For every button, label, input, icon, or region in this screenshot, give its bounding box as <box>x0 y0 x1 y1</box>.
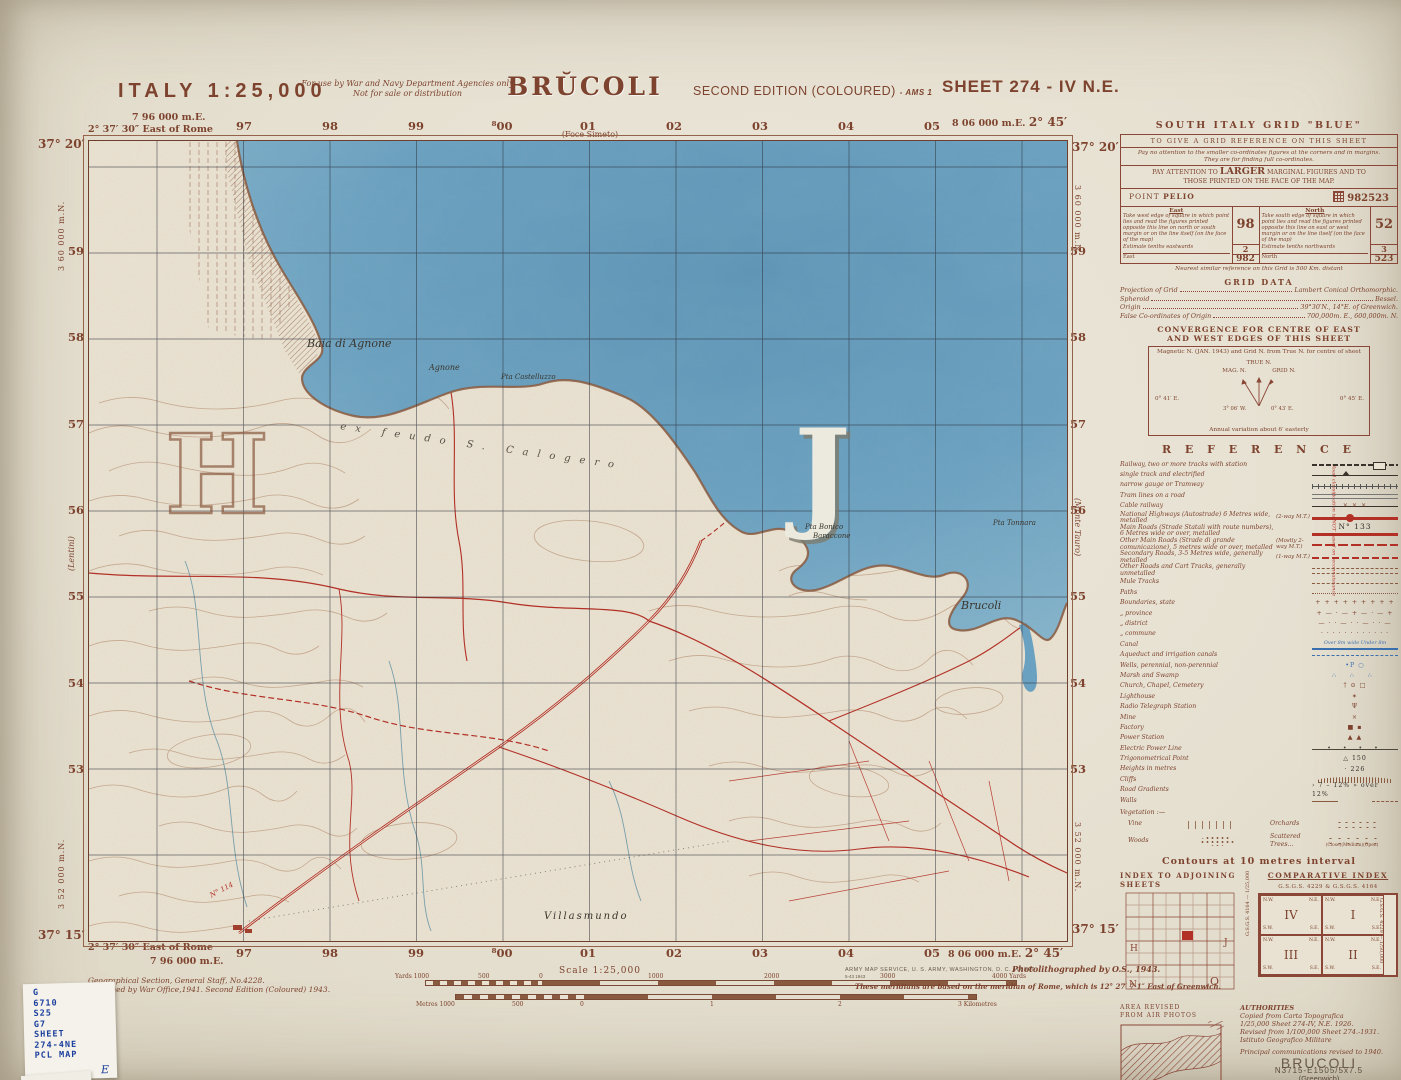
legend-note: (2-way M.T.) <box>1276 515 1312 521</box>
east-tenths-label: Estimate tenths eastwards <box>1123 245 1230 251</box>
vegetation-symbol <box>1180 836 1240 846</box>
legend-label: Wells, perennial, non-perennial <box>1120 663 1276 670</box>
legend-row: Other Roads and Cart Tracks, generally u… <box>1120 564 1398 577</box>
yards-tick: 1000 <box>648 973 663 980</box>
grid-number: 58 <box>68 330 84 344</box>
vegetation-item-label: Vine <box>1128 820 1180 829</box>
legend-symbol-text: • • • • <box>1312 744 1398 754</box>
top-right-latitude: 37° 20′ <box>1072 140 1119 154</box>
legend-label: Canal <box>1120 642 1276 649</box>
grid-number: 98 <box>313 946 347 960</box>
grid-number: 99 <box>399 119 433 133</box>
corner-sw: S.W. <box>1263 965 1273 974</box>
grid-panel-attention: PAY ATTENTION TO LARGER MARGINAL FIGURES… <box>1121 166 1397 189</box>
legend-row: Main Roads (Strade Statali with route nu… <box>1120 525 1398 538</box>
legend-row: Marsh and Swamp ∴ ∴ ∴ <box>1120 671 1398 681</box>
grid-panel-note-a: Pay no attention to the smaller co-ordin… <box>1124 150 1394 157</box>
legend-label: „ commune <box>1120 631 1276 638</box>
legend-row: Factory ■ ▪ <box>1120 723 1398 733</box>
legend-row: „ province + — · — + — · — + <box>1120 609 1398 619</box>
restriction-note: For use by War and Navy Department Agenc… <box>300 79 515 99</box>
grid-square-icon <box>1333 191 1344 202</box>
comparative-cell: IV N.W. N.E. S.W. S.E. <box>1260 895 1322 935</box>
grid-reference-box: TO GIVE A GRID REFERENCE ON THIS SHEET P… <box>1120 134 1398 265</box>
leader-dots <box>1143 308 1299 309</box>
map-label-castelluzzo: Pta Castelluzzo <box>501 373 556 381</box>
legend-symbol: × <box>1312 713 1398 723</box>
legend-row: Mine × <box>1120 713 1398 723</box>
vegetation-label: Vegetation :— <box>1120 808 1398 817</box>
legend-symbol: ▲ ▲ <box>1312 734 1398 744</box>
grid-data-value: Lambert Conical Orthomorphic. <box>1294 286 1398 295</box>
legend-row: narrow gauge or Tramway <box>1120 480 1398 490</box>
map-label-tonnara: Pta Tonnara <box>993 519 1036 527</box>
legend-symbol-text: ▲ ▲ <box>1312 734 1398 744</box>
legend-symbol <box>1312 566 1398 576</box>
vegetation-rows: Vine Orchards Woods <box>1128 820 1398 850</box>
grid-number: 97 <box>227 946 261 960</box>
legend-symbol-text: N° 133 <box>1312 518 1398 536</box>
legend-symbol-text: › 7 – 12% » over 12% <box>1312 786 1398 796</box>
corner-se: S.E. <box>1372 965 1381 974</box>
legend-note: (Mostly 2-way M.T.) <box>1276 539 1312 551</box>
grid-number: 03 <box>743 946 777 960</box>
grid-number: 55 <box>1070 589 1086 603</box>
point-name: PELIO <box>1163 192 1195 201</box>
left-northing-top: 3 60 000 m.N. <box>57 201 66 271</box>
corner-ne: N.E. <box>1309 937 1319 946</box>
east-north-columns: East Take west edge of square in which p… <box>1121 207 1397 263</box>
legend-label: Church, Chapel, Cemetery <box>1120 683 1276 690</box>
legend-symbol-text <box>1312 540 1398 550</box>
legend-label: Boundaries, state <box>1120 600 1276 607</box>
restriction-line2: Not for sale or distribution <box>300 89 515 99</box>
legend-symbol: + + + + + + + + + <box>1312 599 1398 609</box>
legend-row: Canal Over 8m wide Under 8m <box>1120 640 1398 650</box>
legend-symbol <box>1312 481 1398 491</box>
grid-number: 03 <box>743 119 777 133</box>
corner-sw: S.W. <box>1325 925 1335 934</box>
area-revised-diagram <box>1120 1021 1224 1080</box>
legend-symbol-text: •P ○ <box>1312 661 1398 671</box>
grid-number: ⁸00 <box>485 946 519 960</box>
north-value: 52 <box>1371 207 1397 244</box>
grid-number: 54 <box>68 676 84 690</box>
reference-value: 982523 <box>1347 193 1389 204</box>
corner-nw: N.W. <box>1263 897 1274 906</box>
corner-nw: N.W. <box>1325 897 1336 906</box>
map-label-villasmundo: Villasmundo <box>544 911 629 922</box>
legend-label: Tram lines on a road <box>1120 493 1276 500</box>
legend-row: Power Station ▲ ▲ <box>1120 733 1398 743</box>
grid-panel-line1: TO GIVE A GRID REFERENCE ON THIS SHEET <box>1121 135 1397 149</box>
grid-number: 05 <box>915 119 949 133</box>
grid-data-value: Bessel. <box>1375 295 1398 304</box>
legend-row: Paths <box>1120 588 1398 598</box>
outer-right-angle: 0° 45′ E. <box>1340 395 1364 404</box>
grid-data-label: False Co-ordinates of Origin <box>1120 312 1211 321</box>
authorities-line3: Revised from 1/100,000 Sheet 274.-1931. <box>1240 1028 1398 1036</box>
true-north-label: TRUE N. <box>1149 359 1369 368</box>
legend-label: „ district <box>1120 621 1276 628</box>
legend-symbol-text <box>1312 578 1398 588</box>
collation-letter-land: H <box>165 410 269 539</box>
corner-se: S.E. <box>1310 965 1319 974</box>
legend-symbol-text: · 226 <box>1312 765 1398 775</box>
reference-title: R E F E R E N C E <box>1120 446 1398 455</box>
grid-number: 99 <box>399 946 433 960</box>
photolithographed-note: Photolithographed by O.S., 1943. <box>1012 964 1160 974</box>
legend-row: „ district — · · — · · — · · — <box>1120 619 1398 629</box>
legend-row: Walls <box>1120 796 1398 806</box>
east-total-value: 982 <box>1233 254 1259 264</box>
legend-symbol-text: † ⊙ □ <box>1312 682 1398 692</box>
legend-label: Main Roads (Strade Statali with route nu… <box>1120 525 1276 538</box>
convergence-title-2: AND WEST EDGES OF THIS SHEET <box>1120 335 1398 344</box>
east-total-label: East <box>1123 253 1230 261</box>
attention-pre: PAY ATTENTION TO <box>1152 169 1218 176</box>
legend-symbol-text: + + + + + + + + + <box>1312 599 1398 609</box>
corner-sw: S.W. <box>1325 965 1335 974</box>
grid-data-row: Projection of Grid Lambert Conical Ortho… <box>1120 286 1398 295</box>
legend-symbol-text <box>1312 588 1398 598</box>
legend-symbol: + — · — + — · — + <box>1312 609 1398 619</box>
bottom-right-easting: 8 06 000 m.E. 2° 45′ <box>948 946 1063 960</box>
grid-numbers-left: 59585756555453 <box>68 244 84 776</box>
legend-label: Railway, two or more tracks with station <box>1120 462 1276 469</box>
comparative-cell: III N.W. N.E. S.W. S.E. <box>1260 935 1322 975</box>
vegetation-item-label: Scattered Trees... <box>1270 833 1322 850</box>
leader-dots <box>1180 291 1293 292</box>
sheet-title: BRŬCOLI <box>505 72 665 101</box>
grid-number: 55 <box>68 589 84 603</box>
top-right-longitude: 2° 45′ <box>1029 115 1067 129</box>
legend-label: Walls <box>1120 798 1276 805</box>
legend-row: Road Gradients › 7 – 12% » over 12% <box>1120 785 1398 795</box>
comparative-side-right: G.S.G.S. 4229 — 1/50,000 <box>1376 898 1385 963</box>
grid-number: 57 <box>1070 417 1086 431</box>
comparative-index-title: COMPARATIVE INDEX <box>1258 872 1398 881</box>
legend-label: Aqueduct and irrigation canals <box>1120 652 1276 659</box>
area-revised-caption: AREA REVISED FROM AIR PHOTOS <box>1120 1004 1232 1021</box>
grid-number: ⁸00 <box>485 119 519 133</box>
outer-left-angle: 0° 41′ E. <box>1155 395 1179 404</box>
north-labels: MAG. N. GRID N. <box>1149 367 1369 376</box>
comparative-index-header: G.S.G.S. 4229 & G.S.G.S. 4164 <box>1258 883 1398 892</box>
restriction-line1: For use by War and Navy Department Agenc… <box>300 79 515 89</box>
grid-number: 97 <box>227 119 261 133</box>
map-label-bonico: Pta Bonico <box>805 523 843 531</box>
legend-label: Factory <box>1120 725 1276 732</box>
legend-label: „ province <box>1120 611 1276 618</box>
legend-label: Cliffs <box>1120 777 1276 784</box>
legend-symbol-text <box>1312 470 1398 480</box>
legend-label: Radio Telegraph Station <box>1120 704 1276 711</box>
legend-symbol <box>1312 540 1398 550</box>
grid-number: 53 <box>1070 762 1086 776</box>
east-value: 98 <box>1233 207 1259 244</box>
legend-row: Trigonometrical Point △ 150 <box>1120 754 1398 764</box>
yards-tick: 2000 <box>764 973 779 980</box>
metres-tick: 3 Kilometres <box>958 1001 997 1008</box>
legend-symbol: † ⊙ □ <box>1312 682 1398 692</box>
legend-symbol-text: ✶ <box>1312 692 1398 702</box>
right-northing-bottom: 3 52 000 m.N. <box>1073 822 1082 892</box>
corner-ne: N.E. <box>1309 897 1319 906</box>
legend-symbol-text: ■ ▪ <box>1312 723 1398 733</box>
vegetation-item: Vine <box>1128 820 1256 830</box>
legend-label: Road Gradients <box>1120 787 1276 794</box>
adjoining-index-diagram: H J N O <box>1120 889 1240 993</box>
authorities-title: AUTHORITIES <box>1240 1004 1398 1012</box>
grid-data-value: 39°30′N., 14°E. of Greenwich. <box>1300 303 1398 312</box>
bottom-right-easting-value: 8 06 000 m.E. <box>948 949 1022 960</box>
legend-label: Heights in metres <box>1120 766 1276 773</box>
point-label: POINT <box>1129 192 1160 201</box>
catalog-card: E G6710S25G7SHEET274-4NEPCL MAP <box>23 982 117 1080</box>
grid-north-label: GRID N. <box>1272 367 1295 376</box>
legend-label: National Highways (Autostrade) 6 Metres … <box>1120 512 1276 525</box>
legend-symbol: · 226 <box>1312 765 1398 775</box>
legend-row: Radio Telegraph Station Ψ <box>1120 702 1398 712</box>
bottom-left-easting: 7 96 000 m.E. <box>150 956 224 967</box>
grid-number: 59 <box>1070 244 1086 258</box>
vegetation-item-label: Woods <box>1128 837 1180 846</box>
legend-row: Heights in metres · 226 <box>1120 765 1398 775</box>
corner-se: S.E. <box>1310 925 1319 934</box>
legend-symbol-text: Ψ <box>1312 702 1398 712</box>
legend-symbol-text: △ 150 <box>1312 754 1398 764</box>
legend-label: Lighthouse <box>1120 694 1276 701</box>
grid-panel-footer: Nearest similar reference on this Grid i… <box>1120 266 1398 273</box>
legend-row: Railway, two or more tracks with station <box>1120 460 1398 470</box>
index-section: INDEX TO ADJOINING SHEETS H J N O <box>1120 872 1398 996</box>
legend-rows: Railway, two or more tracks with station… <box>1120 460 1398 806</box>
legend-label: Mine <box>1120 715 1276 722</box>
adjoining-letter-j: J <box>1223 938 1228 948</box>
annual-variation-note: Annual variation about 6′ easterly <box>1149 427 1369 434</box>
authorities-line1: Copied from Carta Topografica <box>1240 1012 1398 1020</box>
north-total-value: 523 <box>1371 254 1397 264</box>
legend-label: Mule Tracks <box>1120 579 1276 586</box>
metres-scale-bar <box>455 994 977 1000</box>
attention-post2: THOSE PRINTED ON THE FACE OF THE MAP. <box>1183 178 1334 185</box>
army-map-service-line: ARMY MAP SERVICE, U. S. ARMY, WASHINGTON… <box>845 967 1035 973</box>
legend-symbol: ✶ <box>1312 692 1398 702</box>
grid-data-value: 700,000m. E., 600,000m. N. <box>1307 312 1398 321</box>
north-column: North Take south edge of square in which… <box>1260 207 1398 263</box>
edition-label: SECOND EDITION (COLOURED) - AMS 1 <box>693 84 932 98</box>
grid-number: 01 <box>571 946 605 960</box>
grid-numbers-right: 59585756555453 <box>1070 244 1086 776</box>
grid-numbers-bottom: 979899⁸000102030405 <box>227 946 949 960</box>
yards-tick: 500 <box>478 973 489 980</box>
grid-number: 98 <box>313 119 347 133</box>
legend-label: Marsh and Swamp <box>1120 673 1276 680</box>
leader-dots <box>1213 317 1305 318</box>
legend-row: Lighthouse ✶ <box>1120 692 1398 702</box>
comparative-side-left: G.S.G.S. 4164 — 1/25,000 <box>1244 871 1253 936</box>
legend-symbol-text: × <box>1312 713 1398 723</box>
publisher-note: Geographical Section, General Staff, No.… <box>88 976 330 994</box>
country-scale: ITALY 1:25,000 <box>118 80 327 103</box>
legend-symbol <box>1312 578 1398 588</box>
yards-tick: 4000 Yards <box>992 973 1026 980</box>
east-column: East Take west edge of square in which p… <box>1121 207 1260 263</box>
grid-number: 58 <box>1070 330 1086 344</box>
adjoining-letter-h: H <box>1130 944 1138 954</box>
legend-label: Cable railway <box>1120 503 1276 510</box>
legend-symbol-text <box>1312 650 1398 660</box>
grid-panel-note: Pay no attention to the smaller co-ordin… <box>1121 148 1397 166</box>
top-right-easting-value: 8 06 000 m.E. <box>952 118 1026 129</box>
legend-label: single track and electrified <box>1120 472 1276 479</box>
legend-symbol <box>1312 650 1398 660</box>
grid-number: 53 <box>68 762 84 776</box>
metres-tick: 2 <box>838 1001 842 1008</box>
legend-symbol <box>1312 796 1398 806</box>
yards-tick: Yards 1000 <box>395 973 429 980</box>
legend-symbol: △ 150 <box>1312 754 1398 764</box>
legend-symbol-text: — · · — · · — · · — <box>1312 619 1398 629</box>
grid-panel-title: SOUTH ITALY GRID "BLUE" <box>1120 122 1398 131</box>
corner-sw: S.W. <box>1263 925 1273 934</box>
grid-data-row: Spheroid Bessel. <box>1120 295 1398 304</box>
east-tenths-value: 2 <box>1233 244 1259 254</box>
grid-data-row: Origin 39°30′N., 14°E. of Greenwich. <box>1120 303 1398 312</box>
yards-tick: 0 <box>539 973 543 980</box>
grid-number: 05 <box>915 946 949 960</box>
legend-symbol: × × × <box>1312 501 1398 511</box>
grid-number: 59 <box>68 244 84 258</box>
grid-number: 02 <box>657 946 691 960</box>
area-revised-line1: AREA REVISED <box>1120 1004 1232 1013</box>
authorities-line4: Istituto Geografico Militare <box>1240 1036 1398 1044</box>
legend-symbol <box>1312 491 1398 501</box>
marginalia-panel: SOUTH ITALY GRID "BLUE" TO GIVE A GRID R… <box>1120 122 1398 1080</box>
grid-number: 04 <box>829 946 863 960</box>
north-instructions: Take south edge of square in which point… <box>1262 214 1369 243</box>
magnetic-north-label: MAG. N. <box>1222 367 1246 376</box>
legend-symbol: Over 8m wide Under 8m <box>1312 640 1398 650</box>
edition-text: SECOND EDITION (COLOURED) <box>693 84 896 98</box>
corner-nw: N.W. <box>1325 937 1336 946</box>
vegetation-item-label: Orchards <box>1270 820 1322 829</box>
catalog-card-line: PCL MAP <box>35 1049 117 1062</box>
legend-symbol: Ψ <box>1312 702 1398 712</box>
legend-symbol-text <box>1312 491 1398 501</box>
top-left-latitude: 37° 20′ <box>38 137 85 151</box>
north-tenths-value: 3 <box>1371 244 1397 254</box>
convergence-caption: Magnetic N. (JAN. 1943) and Grid N. from… <box>1149 347 1369 356</box>
bottom-left-longitude: 2° 37′ 30″ East of Rome <box>88 942 213 953</box>
authorities-line2: 1/25,000 Sheet 274-IV, N.E. 1926. <box>1240 1020 1398 1028</box>
bottom-left-latitude: 37° 15′ <box>38 928 85 942</box>
map-sheet: ITALY 1:25,000 For use by War and Navy D… <box>0 0 1401 1080</box>
metres-tick: 0 <box>580 1001 584 1008</box>
legend-symbol-text <box>1312 566 1398 576</box>
legend-symbol-text: × × × <box>1312 501 1398 511</box>
grid-number: 56 <box>68 503 84 517</box>
map-face: J J H Baia di Agnone Agnone Pta Castellu… <box>88 140 1068 942</box>
area-revised: AREA REVISED FROM AIR PHOTOS <box>1120 1004 1232 1080</box>
legend-symbol <box>1312 470 1398 480</box>
north-tenths-label: Estimate tenths northwards <box>1262 245 1369 251</box>
corner-nw: N.W. <box>1263 937 1274 946</box>
attention-big: LARGER <box>1220 166 1265 177</box>
map-artwork: J J H <box>89 141 1067 941</box>
legend-label: Other Roads and Cart Tracks, generally u… <box>1120 564 1276 577</box>
contours-note: Contours at 10 metres interval <box>1120 858 1398 867</box>
grid-data-label: Origin <box>1120 303 1141 312</box>
comparative-cell: II N.W. N.E. S.W. S.E. <box>1322 935 1384 975</box>
legend-symbol: › 7 – 12% » over 12% <box>1312 786 1398 796</box>
legend-row: Tram lines on a road <box>1120 491 1398 501</box>
attention-post: MARGINAL FIGURES AND TO <box>1267 169 1366 176</box>
magnetic-angle: 3° 06′ W. <box>1223 405 1246 414</box>
grid-panel-note-b: They are for finding full co-ordinates. <box>1124 157 1394 164</box>
catalog-card-annotation: E <box>101 1063 109 1076</box>
metres-tick: 500 <box>512 1001 523 1008</box>
grid-data-row: False Co-ordinates of Origin 700,000m. E… <box>1120 312 1398 321</box>
grid-angle: 0° 43′ E. <box>1271 405 1293 414</box>
map-label-bay: Baia di Agnone <box>307 337 392 350</box>
legend-symbol-text: Over 8m wide Under 8m <box>1312 636 1398 650</box>
point-reference-row: POINT PELIO 982523 <box>1121 189 1397 207</box>
legend-symbol-text: + — · — + — · — + <box>1312 609 1398 619</box>
legend-label: Power Station <box>1120 735 1276 742</box>
legend-symbol-text <box>1312 460 1398 470</box>
grid-number: 04 <box>829 119 863 133</box>
publisher-line2: Published by War Office,1941. Second Edi… <box>88 985 330 994</box>
legend-label: Trigonometrical Point <box>1120 756 1276 763</box>
top-left-easting: 7 96 000 m.E. <box>132 112 206 123</box>
vegetation-symbol <box>1180 820 1240 830</box>
grid-data-list: Projection of Grid Lambert Conical Ortho… <box>1120 286 1398 320</box>
legend-symbol-text: ∴ ∴ ∴ <box>1312 671 1398 681</box>
legend-symbol-text <box>1312 481 1398 491</box>
grid-number: 02 <box>657 119 691 133</box>
grid-number: 57 <box>68 417 84 431</box>
legend-symbol <box>1312 460 1398 470</box>
area-revised-line2: FROM AIR PHOTOS <box>1120 1012 1232 1021</box>
legend-label: narrow gauge or Tramway <box>1120 482 1276 489</box>
legend-row: Boundaries, state + + + + + + + + + <box>1120 598 1398 608</box>
top-left-longitude: 2° 37′ 30″ East of Rome <box>88 124 213 135</box>
legend-symbol: ∴ ∴ ∴ <box>1312 671 1398 681</box>
legend-label: Paths <box>1120 590 1276 597</box>
adjoining-sheet-top: (Foce Simeto) <box>543 130 637 139</box>
yards-tick: 3000 <box>880 973 895 980</box>
adjoining-index-title: INDEX TO ADJOINING SHEETS <box>1120 872 1248 889</box>
legend-row: Church, Chapel, Cemetery † ⊙ □ <box>1120 681 1398 691</box>
legend-symbol: •P ○ <box>1312 661 1398 671</box>
vegetation-item: Woods <box>1128 833 1256 850</box>
north-total-label: North <box>1262 253 1369 261</box>
legend-label: Electric Power Line <box>1120 746 1276 753</box>
legend-row: Aqueduct and irrigation canals <box>1120 650 1398 660</box>
authorities-text: AUTHORITIES Copied from Carta Topografic… <box>1240 1004 1398 1080</box>
publisher-line1: Geographical Section, General Staff, No.… <box>88 976 330 985</box>
convergence-box: Magnetic N. (JAN. 1943) and Grid N. from… <box>1148 346 1370 436</box>
legend-symbol: — · · — · · — · · — <box>1312 619 1398 629</box>
legend-symbol: ■ ▪ <box>1312 723 1398 733</box>
legend-note: (1-way M.T.) <box>1276 555 1312 561</box>
legend-symbol <box>1312 588 1398 598</box>
metres-tick: 1 <box>710 1001 714 1008</box>
vegetation-item: Orchards <box>1270 820 1398 830</box>
vegetation-item: Scattered Trees... (Close)(Medium)(Open) <box>1270 833 1398 850</box>
